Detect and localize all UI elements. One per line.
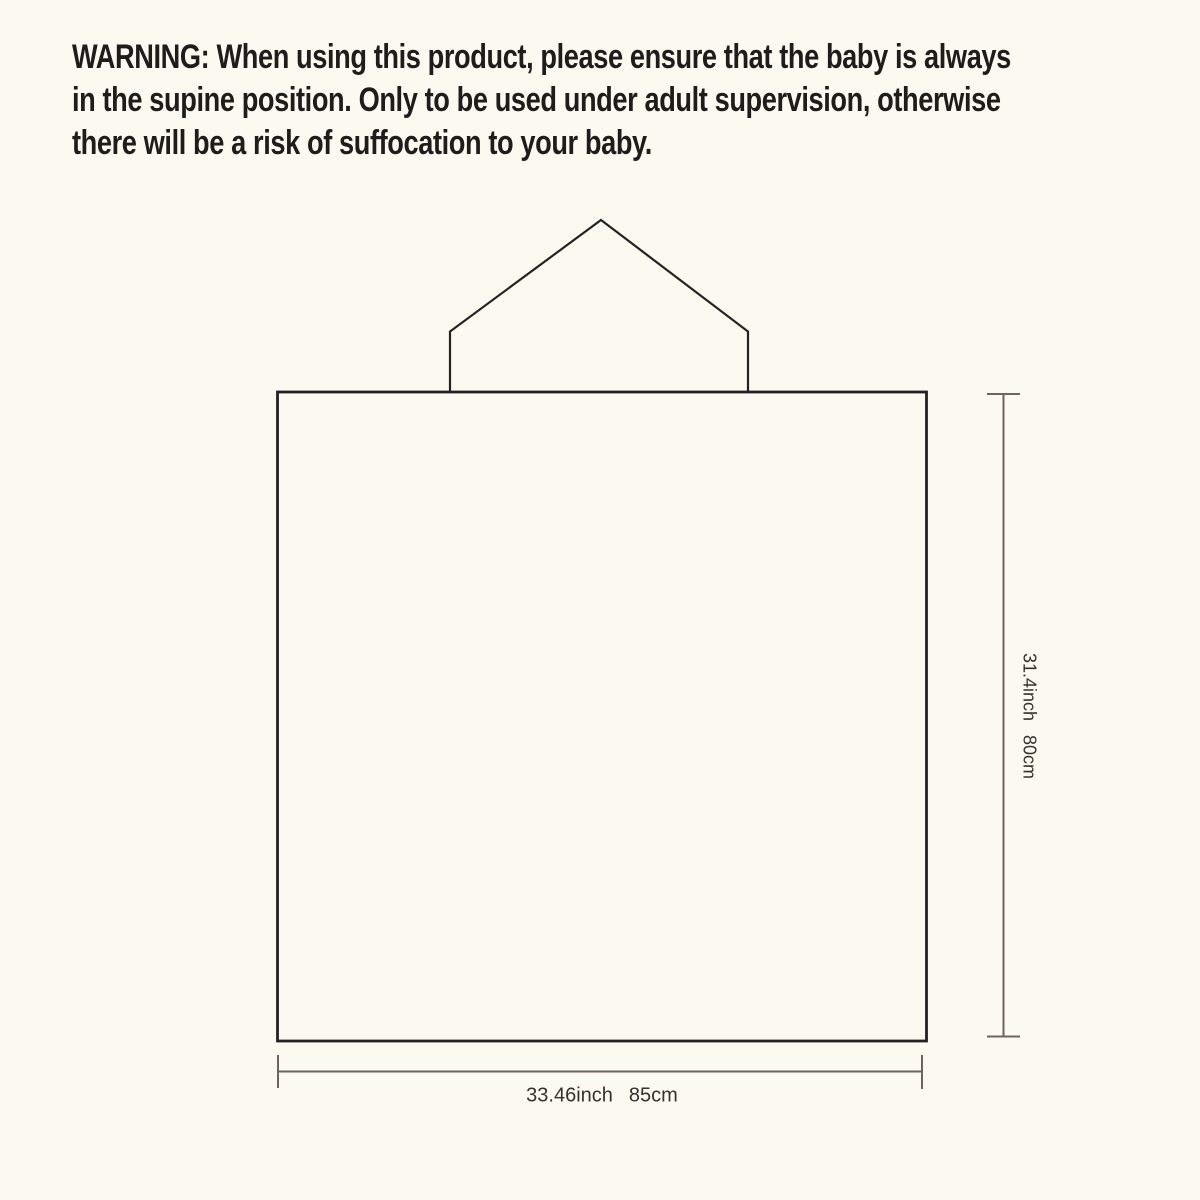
height-inch-value: 31.4inch	[1020, 653, 1040, 721]
blanket-body-outline	[278, 392, 927, 1041]
width-cm-value: 85cm	[629, 1085, 678, 1108]
width-inch-value: 33.46inch	[526, 1085, 613, 1107]
hood-outline	[450, 220, 748, 391]
product-diagram-page: WARNING: When using this product, please…	[0, 0, 1200, 1200]
product-outline-drawing	[0, 0, 1200, 1200]
width-dimension-label: 33.46inch85cm	[526, 1085, 678, 1108]
height-dimension-label: 31.4inch80cm	[1019, 653, 1040, 779]
height-dimension-line	[987, 394, 1020, 1037]
height-cm-value: 80cm	[1019, 735, 1040, 779]
